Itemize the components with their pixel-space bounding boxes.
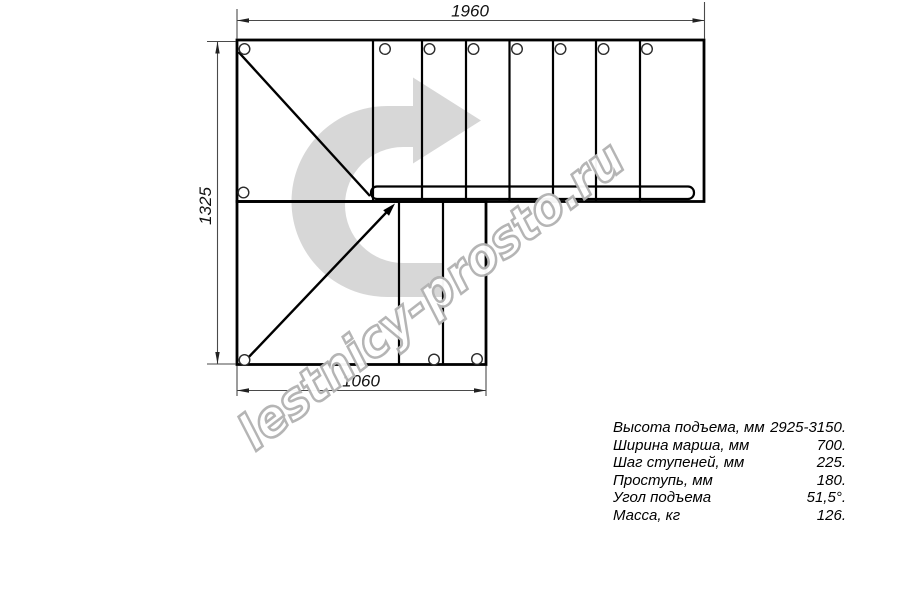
spec-label: Масса, кг [613, 507, 680, 525]
spec-table: Высота подъема, мм 2925-3150. Ширина мар… [613, 419, 846, 525]
spec-row: Высота подъема, мм 2925-3150. [613, 419, 846, 437]
spec-label: Угол подъема [613, 489, 711, 507]
dimension-label-top: 1960 [451, 2, 489, 21]
spec-row: Масса, кг 126. [613, 507, 846, 525]
dim-arrowhead [237, 18, 249, 22]
spec-label: Ширина марша, мм [613, 437, 749, 455]
spec-value: 180. [817, 472, 846, 490]
dim-arrowhead [215, 352, 219, 364]
spec-label: Шаг ступеней, мм [613, 454, 744, 472]
dimension-label-left: 1325 [196, 187, 215, 225]
mount-hole [468, 44, 479, 55]
mount-hole [380, 44, 391, 55]
mount-hole [238, 187, 249, 198]
spec-value: 700. [817, 437, 846, 455]
mount-hole [598, 44, 609, 55]
mount-hole [239, 44, 250, 55]
site-watermark-text: lestnicy-prosto.ru [227, 129, 635, 461]
mount-hole [424, 44, 435, 55]
spec-label: Высота подъема, мм [613, 419, 765, 437]
spec-row: Шаг ступеней, мм 225. [613, 454, 846, 472]
mount-hole [239, 355, 250, 366]
spec-value: 2925-3150. [770, 419, 846, 437]
mount-hole [429, 354, 440, 365]
dim-arrowhead [693, 18, 705, 22]
stair-drawing-page: 1960 1325 1060 lestnicy-prosto.ru Высота… [0, 0, 900, 600]
spec-row: Проступь, мм 180. [613, 472, 846, 490]
spec-value: 225. [817, 454, 846, 472]
dim-arrowhead [237, 388, 249, 392]
mount-hole [512, 44, 523, 55]
spec-label: Проступь, мм [613, 472, 713, 490]
spec-row: Ширина марша, мм 700. [613, 437, 846, 455]
spec-value: 126. [817, 507, 846, 525]
dim-arrowhead [474, 388, 486, 392]
spec-value: 51,5°. [807, 489, 846, 507]
mount-hole [642, 44, 653, 55]
dim-arrowhead [215, 42, 219, 54]
mount-hole [472, 354, 483, 365]
mount-hole [555, 44, 566, 55]
spec-row: Угол подъема 51,5°. [613, 489, 846, 507]
